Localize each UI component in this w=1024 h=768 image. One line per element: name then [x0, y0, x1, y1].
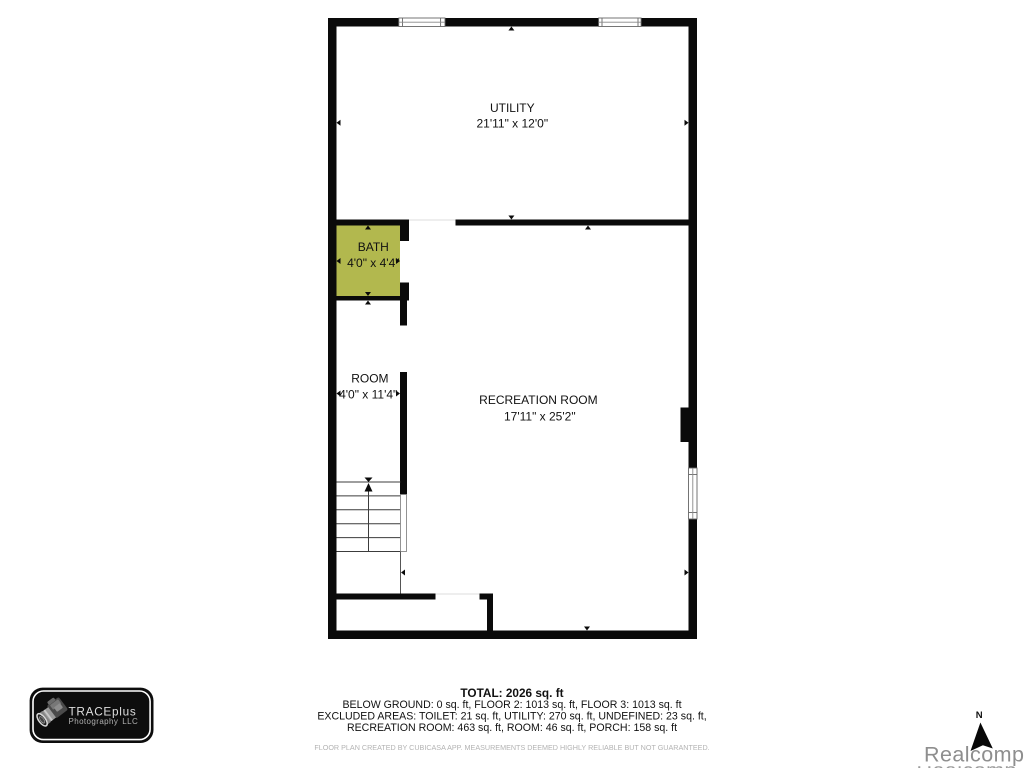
svg-text:4'0" x 11'4": 4'0" x 11'4" — [339, 387, 397, 401]
svg-text:4'0" x 4'4": 4'0" x 4'4" — [347, 256, 399, 270]
svg-text:N: N — [976, 710, 983, 721]
svg-text:BATH: BATH — [358, 240, 389, 254]
svg-text:17'11" x 25'2": 17'11" x 25'2" — [504, 410, 576, 424]
svg-text:RECREATION ROOM: 463 sq. ft, R: RECREATION ROOM: 463 sq. ft, ROOM: 46 sq… — [347, 722, 677, 734]
svg-text:TRACEplus: TRACEplus — [69, 704, 137, 718]
svg-text:Realcomp: Realcomp — [924, 742, 1024, 766]
svg-text:ROOM: ROOM — [351, 372, 388, 386]
svg-text:FLOOR PLAN CREATED BY CUBICASA: FLOOR PLAN CREATED BY CUBICASA APP. MEAS… — [314, 743, 709, 752]
svg-text:EXCLUDED AREAS: TOILET: 21 sq.: EXCLUDED AREAS: TOILET: 21 sq. ft, UTILI… — [317, 710, 706, 722]
svg-text:UTILITY: UTILITY — [490, 101, 535, 115]
svg-text:BELOW GROUND: 0 sq. ft, FLOOR: BELOW GROUND: 0 sq. ft, FLOOR 2: 1013 sq… — [342, 699, 681, 711]
svg-text:PhotographyLLC: PhotographyLLC — [69, 717, 139, 726]
svg-text:RECREATION ROOM: RECREATION ROOM — [479, 393, 597, 407]
svg-text:TOTAL: 2026 sq. ft: TOTAL: 2026 sq. ft — [460, 686, 563, 700]
svg-text:21'11" x 12'0": 21'11" x 12'0" — [476, 117, 548, 131]
